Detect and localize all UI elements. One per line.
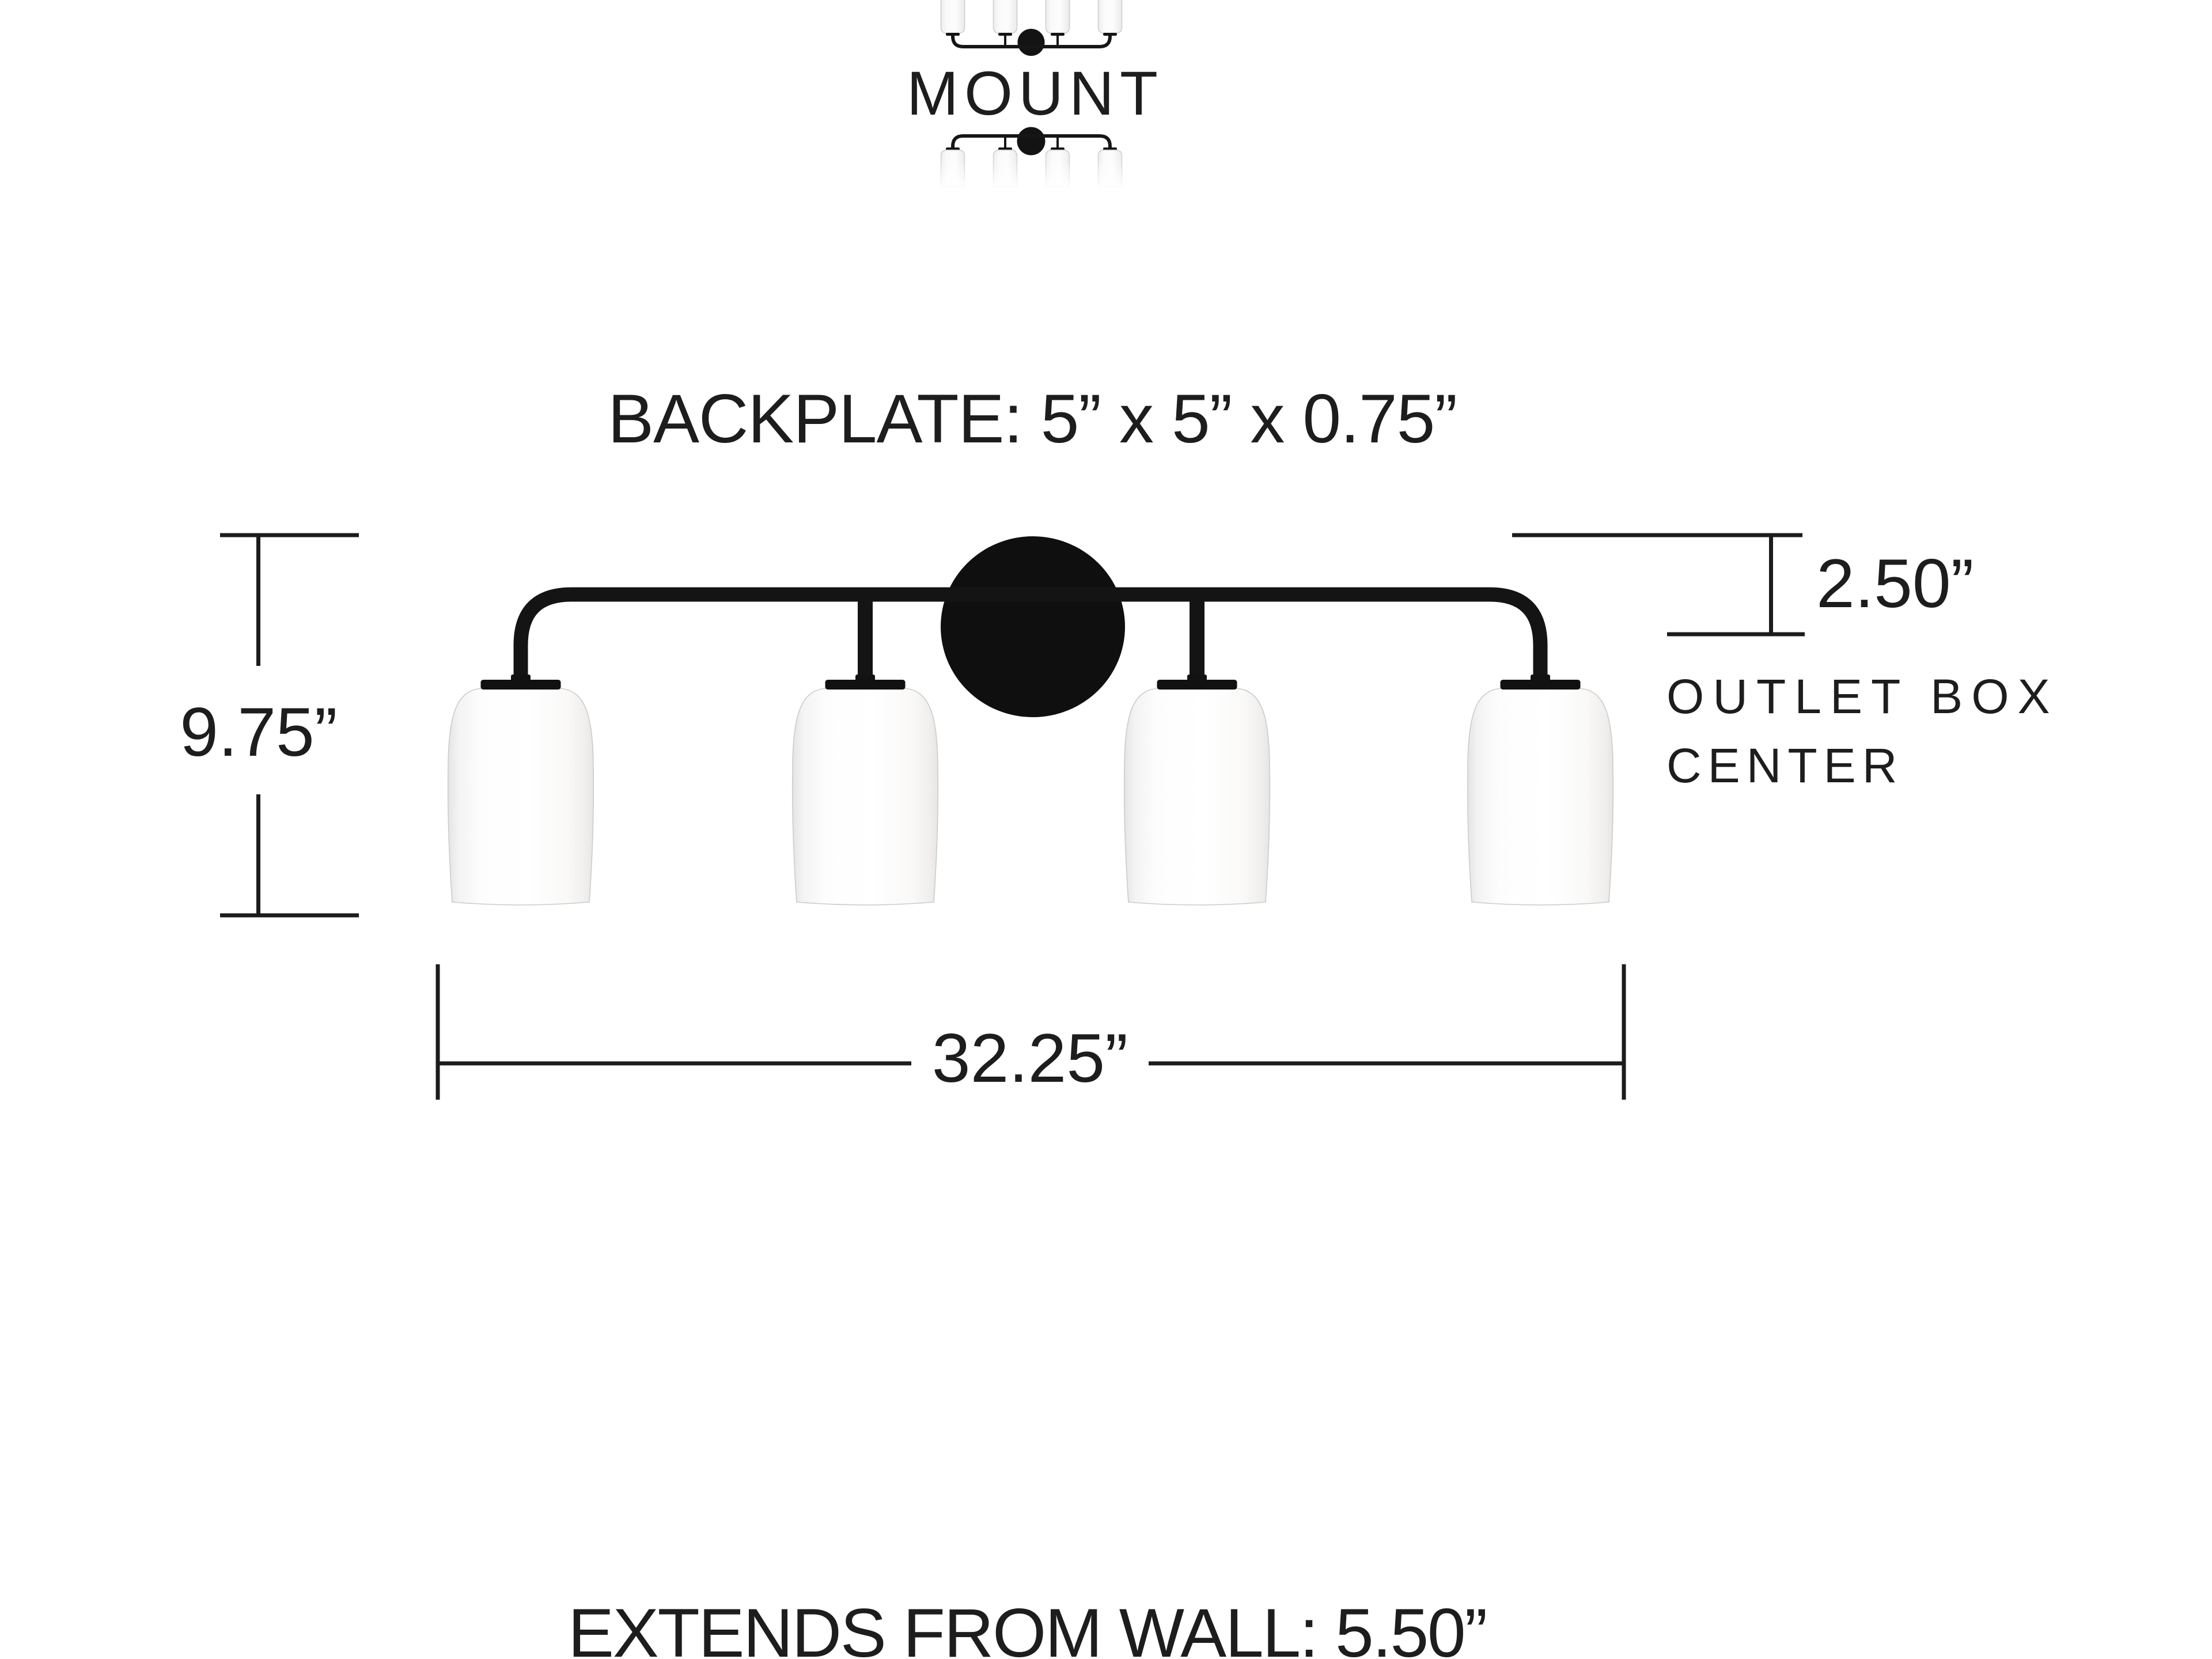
svg-text:OUTLET BOX: OUTLET BOX — [1666, 669, 2059, 724]
svg-text:MOUNT: MOUNT — [907, 58, 1164, 128]
svg-text:EXTENDS FROM WALL: 5.50”: EXTENDS FROM WALL: 5.50” — [568, 1594, 1486, 1659]
svg-text:9.75”: 9.75” — [180, 694, 338, 771]
svg-text:BACKPLATE: 5” x 5” x 0.75”: BACKPLATE: 5” x 5” x 0.75” — [608, 380, 1457, 457]
svg-text:CENTER: CENTER — [1666, 738, 1903, 793]
svg-text:2.50”: 2.50” — [1816, 545, 1974, 622]
svg-text:32.25”: 32.25” — [932, 1020, 1128, 1097]
